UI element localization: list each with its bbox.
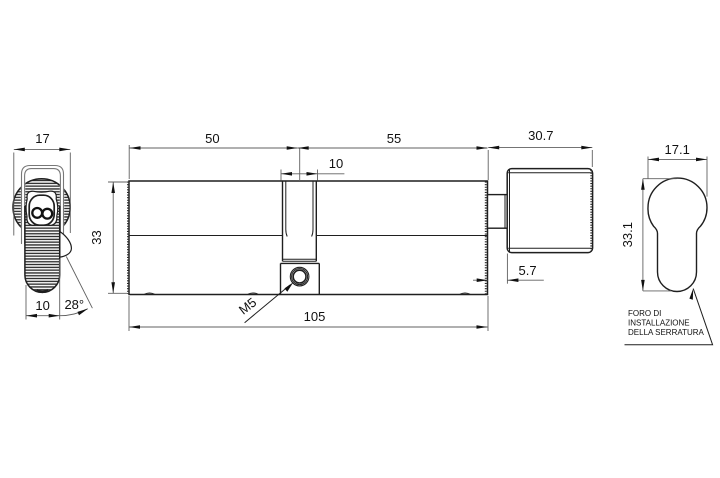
- svg-text:10: 10: [35, 298, 49, 313]
- svg-text:105: 105: [304, 309, 326, 324]
- svg-text:17.1: 17.1: [665, 142, 690, 157]
- svg-text:17: 17: [35, 131, 49, 146]
- svg-text:30.7: 30.7: [528, 128, 553, 143]
- svg-text:28°: 28°: [64, 297, 84, 312]
- svg-text:10: 10: [329, 156, 343, 171]
- svg-text:50: 50: [205, 131, 219, 146]
- svg-text:5.7: 5.7: [519, 263, 537, 278]
- svg-text:DELLA SERRATURA: DELLA SERRATURA: [628, 328, 705, 337]
- svg-text:55: 55: [387, 131, 401, 146]
- svg-text:INSTALLAZIONE: INSTALLAZIONE: [628, 318, 690, 327]
- svg-text:33: 33: [89, 230, 104, 244]
- svg-text:FORO DI: FORO DI: [628, 309, 661, 318]
- svg-text:33.1: 33.1: [620, 222, 635, 247]
